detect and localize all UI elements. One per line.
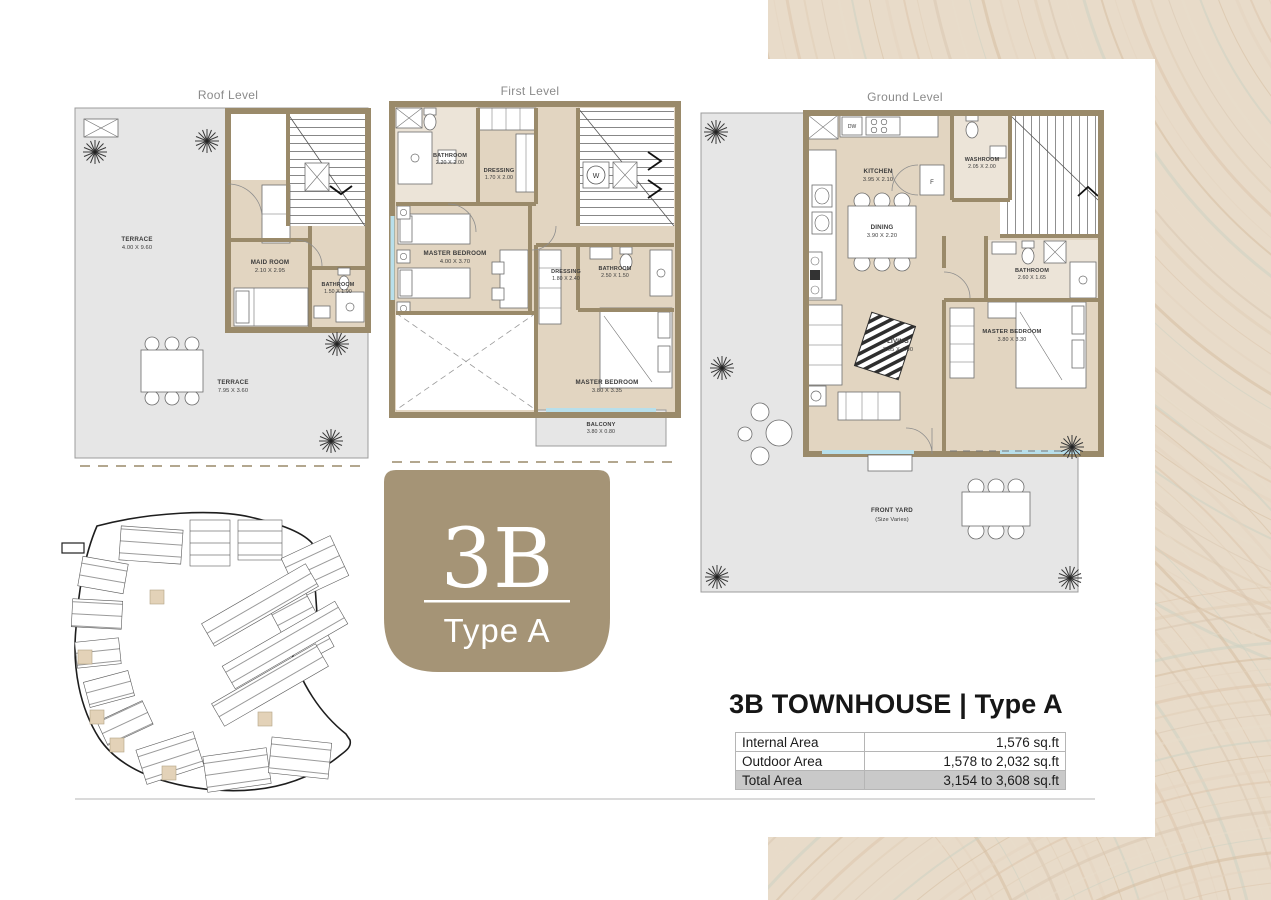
- svg-text:F: F: [930, 180, 934, 186]
- room-dims: 3.80 X 3.30: [998, 337, 1027, 343]
- room-dims: 2.50 X 1.50: [601, 273, 629, 279]
- room-dims: 3.80 X 3.35: [592, 388, 622, 394]
- room-dims: 4.00 X 9.60: [122, 245, 152, 251]
- room-dims: 3.90 X 2.20: [867, 233, 897, 239]
- room-dims: (Size Varies): [875, 517, 908, 523]
- site-plan: [62, 513, 350, 793]
- shaft-icon: [305, 163, 329, 191]
- room-label: LIVING: [887, 338, 909, 345]
- first-level-plan: W: [391, 104, 679, 462]
- room-dims: 1.70 X 2.00: [485, 175, 513, 181]
- bed-icon: [234, 288, 308, 326]
- level-title-ground: Ground Level: [820, 90, 990, 104]
- plans-canvas: TERRACE 4.00 X 9.60 MAID ROOM 2.10 X 2.9…: [0, 59, 1155, 837]
- area-label: Total Area: [736, 771, 865, 790]
- area-value: 3,154 to 3,608 sq.ft: [864, 771, 1065, 790]
- room-label: BALCONY: [586, 422, 615, 428]
- outdoor-table-icon: [141, 337, 203, 405]
- ground-stairs: [1000, 115, 1098, 236]
- area-label: Outdoor Area: [736, 752, 865, 771]
- svg-text:W: W: [593, 173, 600, 180]
- table-row: Outdoor Area 1,578 to 2,032 sq.ft: [736, 752, 1066, 771]
- tree-icon: [325, 332, 349, 356]
- tree-icon: [710, 356, 734, 380]
- entry-step: [868, 455, 912, 471]
- room-label: DRESSING: [551, 269, 581, 275]
- closet-icon: [613, 162, 637, 188]
- washing-machine-icon: W: [583, 162, 609, 188]
- table-row: Internal Area 1,576 sq.ft: [736, 733, 1066, 752]
- level-title-first: First Level: [445, 84, 615, 98]
- room-dims: 2.05 X 2.00: [968, 164, 996, 170]
- badge-divider: [424, 600, 570, 603]
- ac-unit-icon: [84, 119, 118, 137]
- room-label: DRESSING: [484, 168, 515, 174]
- room-label: DINING: [871, 224, 894, 231]
- tree-icon: [705, 565, 729, 589]
- roof-level-plan: TERRACE 4.00 X 9.60 MAID ROOM 2.10 X 2.9…: [75, 108, 368, 466]
- room-dims: 7.95 X 3.60: [218, 388, 248, 394]
- footer-divider: [75, 798, 1095, 800]
- svg-text:DW: DW: [848, 124, 857, 130]
- room-dims: 2.60 X 1.65: [1018, 275, 1046, 281]
- room-label: MAID ROOM: [251, 259, 290, 266]
- room-label: MASTER BEDROOM: [576, 379, 639, 386]
- room-dims: 2.10 X 2.95: [255, 268, 285, 274]
- room-dims: 1.50 X 1.90: [324, 289, 352, 295]
- ground-bed-icon: [950, 302, 1086, 388]
- brochure-page: TERRACE 4.00 X 9.60 MAID ROOM 2.10 X 2.9…: [0, 0, 1271, 900]
- dining-set-icon: [848, 193, 916, 271]
- area-value: 1,578 to 2,032 sq.ft: [864, 752, 1065, 771]
- area-table: Internal Area 1,576 sq.ft Outdoor Area 1…: [735, 732, 1066, 790]
- tree-icon: [704, 120, 728, 144]
- page-title: 3B TOWNHOUSE | Type A: [715, 689, 1077, 720]
- void-roof-below: [396, 311, 536, 410]
- room-label: BATHROOM: [599, 266, 632, 272]
- badge-type: Type A: [444, 612, 551, 649]
- room-dims: 3.95 X 2.10: [863, 177, 893, 183]
- yard-dining-icon: [962, 479, 1030, 539]
- room-label: KITCHEN: [864, 168, 893, 175]
- tree-icon: [83, 140, 107, 164]
- type-badge: 3B Type A: [384, 470, 610, 672]
- ground-level-plan: DW F: [701, 113, 1101, 592]
- room-dims: 3.80 X 0.80: [587, 429, 615, 435]
- badge-code: 3B: [441, 512, 553, 607]
- tree-icon: [1060, 435, 1084, 459]
- room-label: TERRACE: [121, 236, 152, 243]
- area-value: 1,576 sq.ft: [864, 733, 1065, 752]
- room-dims: 2.20 X 2.00: [436, 160, 464, 166]
- room-label: WASHROOM: [965, 157, 1000, 163]
- double-bed-icon: [600, 308, 672, 388]
- tree-icon: [1058, 566, 1082, 590]
- tree-icon: [319, 429, 343, 453]
- room-dims: 3.95 X 4.00: [883, 347, 913, 353]
- room-label: BATHROOM: [433, 153, 467, 159]
- room-label: TERRACE: [217, 379, 248, 386]
- room-dims: 1.80 X 2.40: [552, 276, 580, 282]
- tree-icon: [195, 129, 219, 153]
- room-dims: 4.00 X 3.70: [440, 259, 470, 265]
- area-label: Internal Area: [736, 733, 865, 752]
- level-title-roof: Roof Level: [143, 88, 313, 102]
- room-label: MASTER BEDROOM: [424, 250, 487, 257]
- room-label: BATHROOM: [1015, 268, 1049, 274]
- room-label: MASTER BEDROOM: [982, 329, 1041, 335]
- room-label: FRONT YARD: [871, 507, 913, 514]
- table-row-total: Total Area 3,154 to 3,608 sq.ft: [736, 771, 1066, 790]
- page-sheet: TERRACE 4.00 X 9.60 MAID ROOM 2.10 X 2.9…: [0, 59, 1155, 837]
- room-label: BATHROOM: [322, 282, 355, 288]
